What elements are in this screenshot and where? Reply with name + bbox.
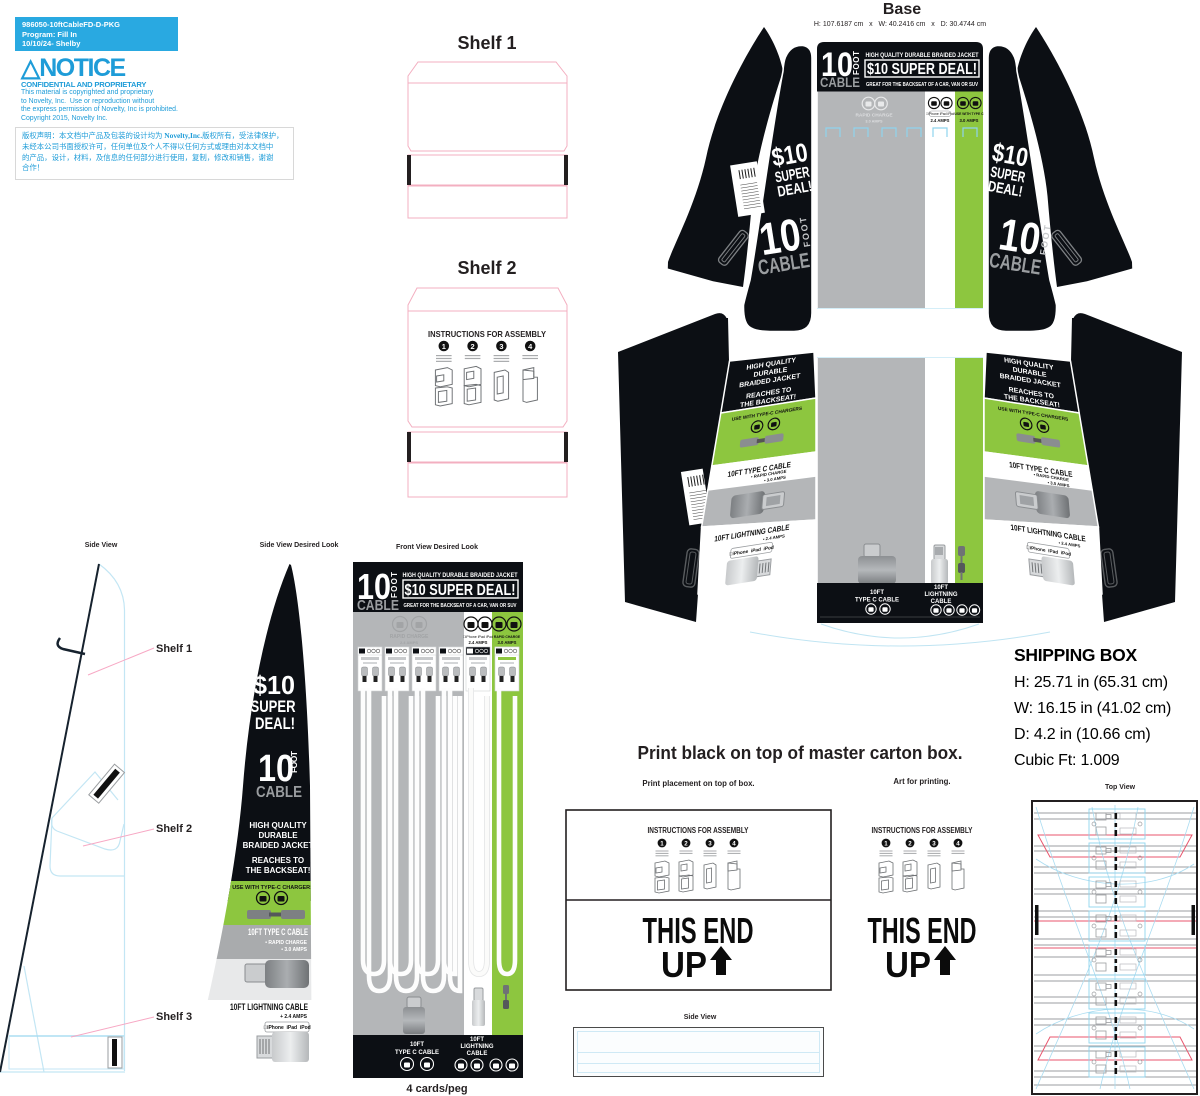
svg-text:iPhone iPad iPod: iPhone iPad iPod xyxy=(926,112,955,116)
svg-text:$10 SUPER DEAL!: $10 SUPER DEAL! xyxy=(867,61,977,78)
svg-text:+ 2.4 AMPS: + 2.4 AMPS xyxy=(280,1014,308,1020)
svg-text:RAPID CHARGE: RAPID CHARGE xyxy=(855,113,893,119)
svg-text:Base: Base xyxy=(883,1,921,18)
svg-text:TYPE C CABLE: TYPE C CABLE xyxy=(395,1050,439,1056)
svg-text:3: 3 xyxy=(499,342,503,351)
svg-text:• RAPID CHARGE: • RAPID CHARGE xyxy=(265,940,307,946)
svg-text:FOOT: FOOT xyxy=(390,572,399,598)
svg-text:• 3.0 AMPS: • 3.0 AMPS xyxy=(281,947,307,953)
svg-text:HIGH QUALITY DURABLE BRAIDED J: HIGH QUALITY DURABLE BRAIDED JACKET xyxy=(866,52,979,59)
svg-text:INSTRUCTIONS FOR ASSEMBLY: INSTRUCTIONS FOR ASSEMBLY xyxy=(648,825,749,835)
svg-text:DURABLE: DURABLE xyxy=(258,831,298,840)
svg-text:2.4 AMPS: 2.4 AMPS xyxy=(400,640,418,645)
svg-text:LIGHTNING: LIGHTNING xyxy=(461,1044,494,1050)
svg-text:Side View: Side View xyxy=(85,542,118,549)
svg-text:RAPID CHARGE: RAPID CHARGE xyxy=(494,635,521,639)
svg-text:HIGH QUALITY: HIGH QUALITY xyxy=(249,821,307,830)
svg-text:4: 4 xyxy=(956,840,960,847)
svg-text:USE WITH TYPE C: USE WITH TYPE C xyxy=(955,112,985,116)
svg-text:1: 1 xyxy=(660,840,664,847)
svg-text:10FT TYPE C CABLE: 10FT TYPE C CABLE xyxy=(248,927,308,937)
svg-text:3: 3 xyxy=(708,840,712,847)
svg-text:$10: $10 xyxy=(253,670,295,700)
svg-text:$10 SUPER DEAL!: $10 SUPER DEAL! xyxy=(405,582,516,599)
svg-text:CABLE: CABLE xyxy=(256,784,302,801)
svg-text:3.0 AMPS: 3.0 AMPS xyxy=(865,120,883,124)
svg-text:HIGH QUALITY DURABLE BRAIDED J: HIGH QUALITY DURABLE BRAIDED JACKET xyxy=(403,572,518,579)
svg-text:GREAT FOR THE BACKSEAT OF A CA: GREAT FOR THE BACKSEAT OF A CAR, VAN OR … xyxy=(866,82,979,88)
svg-text:10FT: 10FT xyxy=(870,590,884,596)
svg-text:TYPE C CABLE: TYPE C CABLE xyxy=(855,598,899,604)
svg-text:10FT: 10FT xyxy=(470,1037,484,1043)
svg-text:Side View Desired Look: Side View Desired Look xyxy=(260,542,339,549)
svg-text:DEAL!: DEAL! xyxy=(255,714,295,733)
svg-text:10FT: 10FT xyxy=(934,585,948,591)
svg-text:2: 2 xyxy=(908,840,912,847)
svg-text:4: 4 xyxy=(732,840,736,847)
svg-text:CABLE: CABLE xyxy=(357,598,399,614)
svg-text:GREAT FOR THE BACKSEAT OF A CA: GREAT FOR THE BACKSEAT OF A CAR, VAN OR … xyxy=(404,603,518,609)
svg-text:2.4 AMPS: 2.4 AMPS xyxy=(469,640,488,645)
svg-text:3.0 AMPS: 3.0 AMPS xyxy=(498,640,517,645)
svg-text:10FT LIGHTNING CABLE: 10FT LIGHTNING CABLE xyxy=(230,1002,308,1012)
svg-text:4 cards/peg: 4 cards/peg xyxy=(406,1083,467,1095)
svg-text:THE BACKSEAT!: THE BACKSEAT! xyxy=(246,866,311,875)
svg-text:UP: UP xyxy=(661,944,707,985)
svg-text:10FT: 10FT xyxy=(410,1042,424,1048)
svg-text:3.0 AMPS: 3.0 AMPS xyxy=(960,118,979,123)
svg-text:REACHES TO: REACHES TO xyxy=(252,856,304,865)
svg-text:1: 1 xyxy=(884,840,888,847)
svg-text:2.4 AMPS: 2.4 AMPS xyxy=(931,118,950,123)
svg-text:CABLE: CABLE xyxy=(931,599,952,605)
svg-text:Front View Desired Look: Front View Desired Look xyxy=(396,544,478,551)
svg-text:INSTRUCTIONS FOR ASSEMBLY: INSTRUCTIONS FOR ASSEMBLY xyxy=(428,329,546,339)
svg-text:INSTRUCTIONS FOR ASSEMBLY: INSTRUCTIONS FOR ASSEMBLY xyxy=(872,825,973,835)
svg-text:UP: UP xyxy=(885,944,931,985)
svg-text:H: 107.6187 cm x W: 40.241: H: 107.6187 cm x W: 40.2416 cm x D: 30.4… xyxy=(814,21,986,28)
svg-text:LIGHTNING: LIGHTNING xyxy=(925,592,958,598)
svg-text:CABLE: CABLE xyxy=(820,74,860,90)
svg-text:2: 2 xyxy=(471,342,475,351)
svg-text:FOOT: FOOT xyxy=(852,51,861,75)
svg-text:BRAIDED JACKET: BRAIDED JACKET xyxy=(243,841,314,850)
svg-text:1: 1 xyxy=(442,342,446,351)
svg-text:FOOT: FOOT xyxy=(289,750,299,773)
svg-text:3: 3 xyxy=(932,840,936,847)
svg-text:iPhone iPad iPod: iPhone iPad iPod xyxy=(463,635,493,639)
svg-text:CABLE: CABLE xyxy=(467,1051,488,1057)
svg-text:iPhone iPad iPod: iPhone iPad iPod xyxy=(263,1025,310,1031)
svg-text:USE WITH TYPE-C CHARGERS: USE WITH TYPE-C CHARGERS xyxy=(232,885,314,891)
svg-text:2: 2 xyxy=(684,840,688,847)
